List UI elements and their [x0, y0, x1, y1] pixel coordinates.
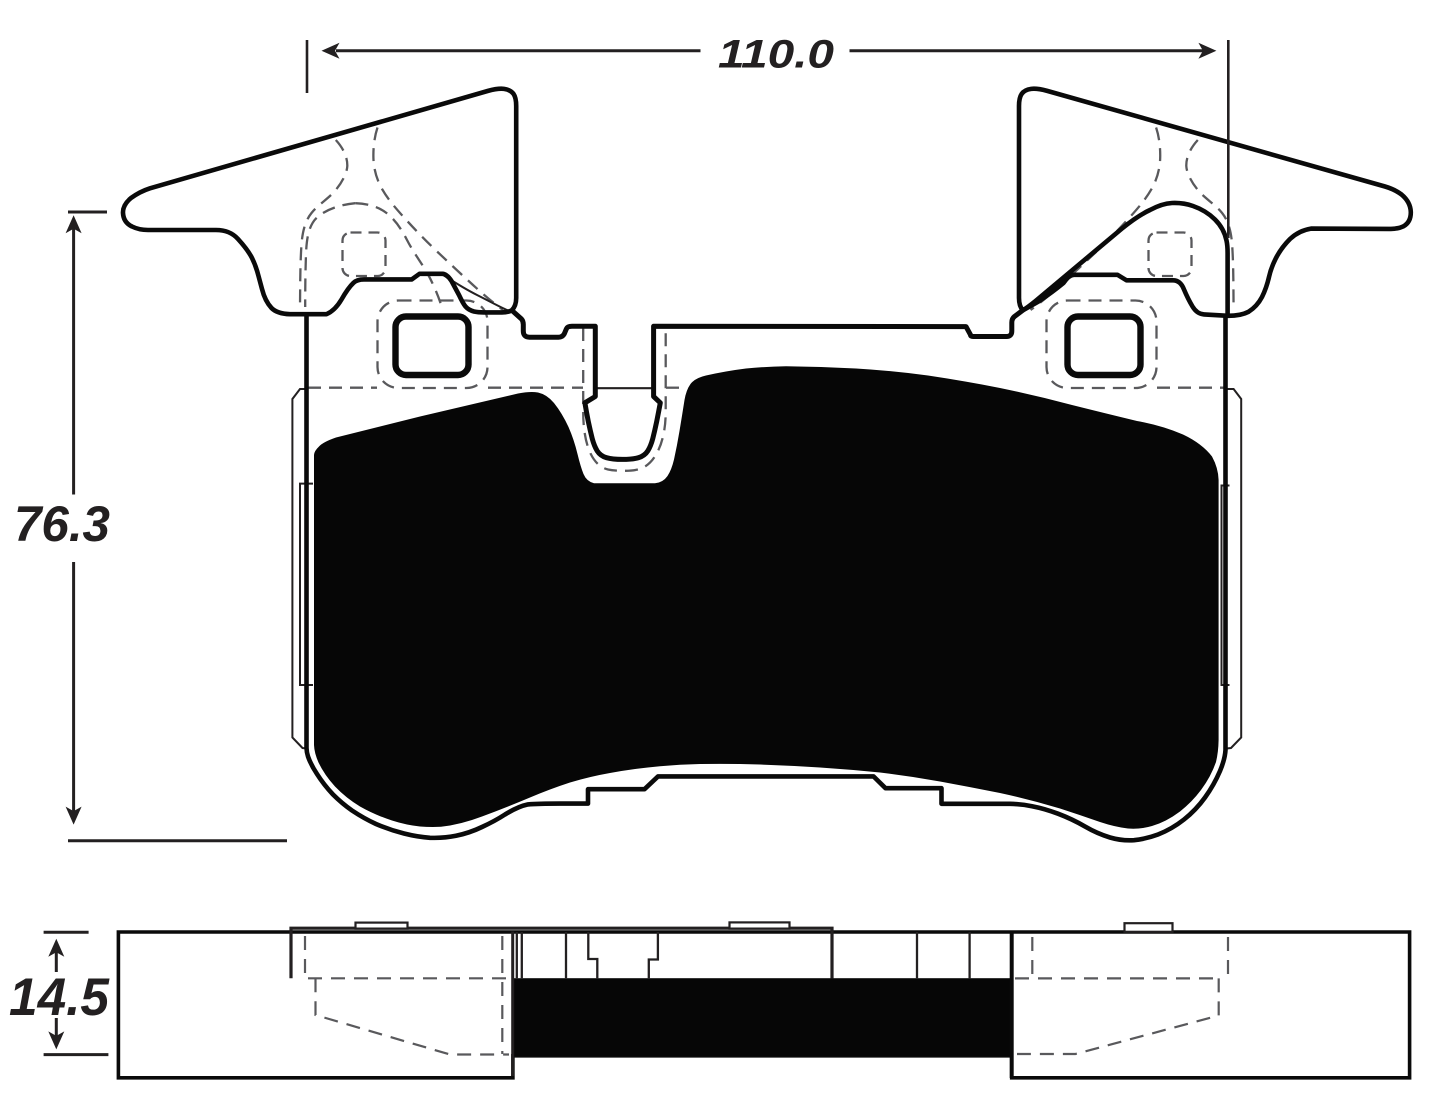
svg-text:14.5: 14.5: [9, 968, 110, 1027]
svg-text:76.3: 76.3: [14, 496, 110, 552]
svg-text:110.0: 110.0: [718, 33, 834, 77]
